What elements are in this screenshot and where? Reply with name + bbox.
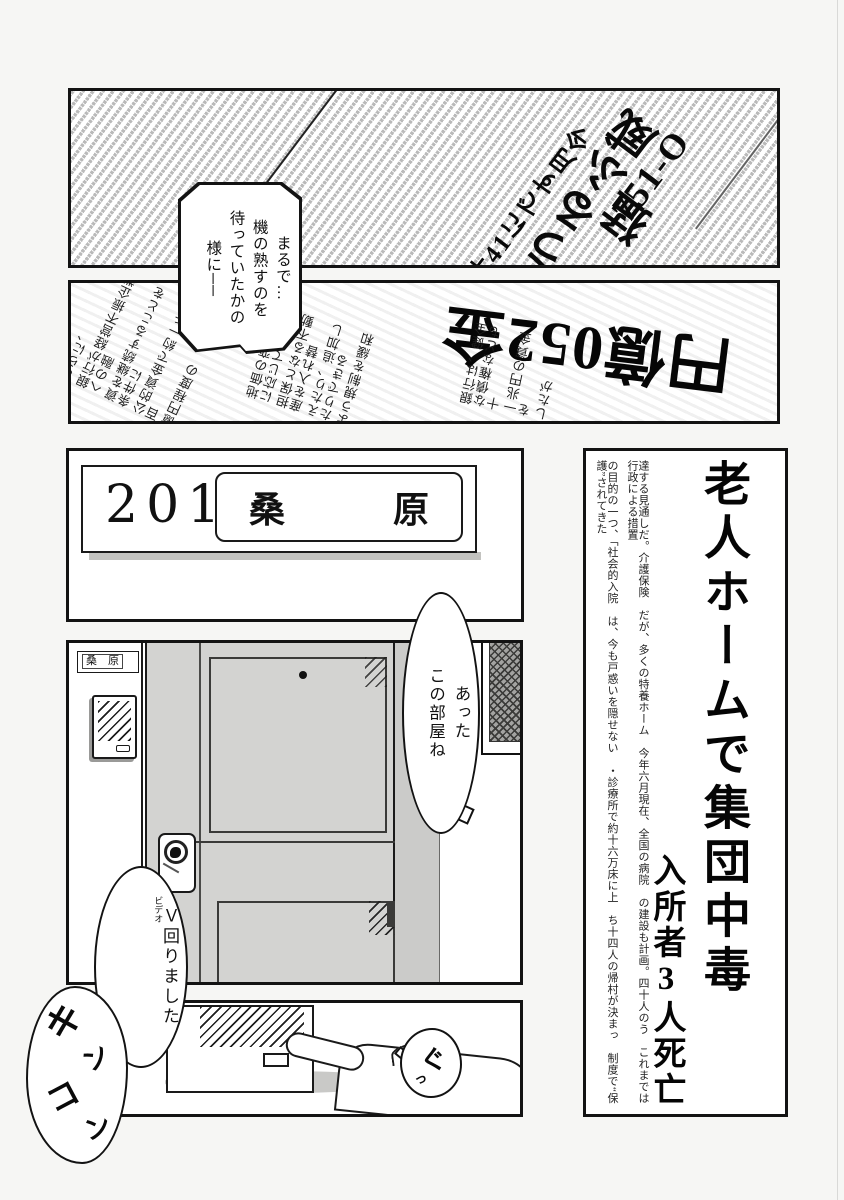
door-rail-line — [191, 841, 397, 843]
narration-bubble: まるで… 機の熟すのを 待っていたかの 様に── — [178, 182, 302, 354]
inset-corner-shadow — [387, 901, 395, 927]
article-headline-main: 老人ホームで集団中毒 — [688, 459, 757, 1019]
peephole — [299, 671, 307, 679]
sfx-bubble-press: ぐ っ — [400, 1028, 462, 1098]
hall-window-frame — [481, 640, 523, 755]
narration-text: まるで… 機の熟すのを 待っていたかの 様に── — [186, 192, 294, 344]
furigana-video: ビデオ — [152, 896, 165, 923]
intercom-button[interactable] — [116, 745, 130, 752]
resident-name: 桑 原 — [249, 481, 429, 533]
intercom-unit[interactable] — [92, 695, 137, 759]
speech-bubble-found-room: あった この部屋ね — [402, 592, 480, 834]
door-lock-cylinder[interactable] — [164, 840, 188, 864]
inset-corner-shade — [365, 657, 387, 687]
article-body-columns: 達する見通しだ。介護保険 だが、多くの特養ホーム 今年六月現在、全国の病院 の建… — [595, 460, 648, 1110]
door-lower-inset — [217, 901, 395, 985]
panel-newspaper-bank: 円億052金 さらに、 銀行が経営不振企業への融 資を継続することを条件に 公的… — [68, 280, 780, 424]
panel-newspaper-o157: 751-O うるふ威猛 件41にです月今 — [68, 88, 780, 268]
hall-window-glass — [489, 640, 523, 742]
speech-text-found-room: あった この部屋ね — [408, 604, 474, 822]
article-headline-sub: 入所者3人死亡 — [642, 853, 690, 1113]
name-card: 桑 原 — [215, 472, 463, 542]
sfx-bubble-doorbell: キ ン コ ン — [26, 986, 128, 1164]
panel-article-nursing-home: 老人ホームで集団中毒 入所者3人死亡 達する見通しだ。介護保険 だが、多くの特養… — [583, 448, 788, 1117]
room-number: 201 — [105, 475, 228, 535]
intercom-speaker-grille — [98, 701, 131, 741]
door-stile-line — [199, 643, 201, 985]
article-body-col: 達する見通しだ。介護保険 だが、多くの特養ホーム 今年六月現在、全国の病院 の建… — [626, 460, 648, 1110]
keyhole — [170, 847, 181, 858]
nameplate-board: 201 桑 原 — [81, 465, 477, 553]
article-body-col: の目的の一つ、「社会的入院 は、今も戸惑いを隠せない ・診療所で約十六万床に上 … — [595, 460, 617, 1110]
door-plate: 桑 原 — [77, 651, 139, 673]
scan-edge-line — [837, 0, 838, 1200]
intercom-button[interactable] — [263, 1053, 289, 1067]
door-plate-name: 桑 原 — [82, 654, 123, 669]
nameplate-shadow — [89, 552, 481, 560]
door-upper-inset — [209, 657, 387, 833]
